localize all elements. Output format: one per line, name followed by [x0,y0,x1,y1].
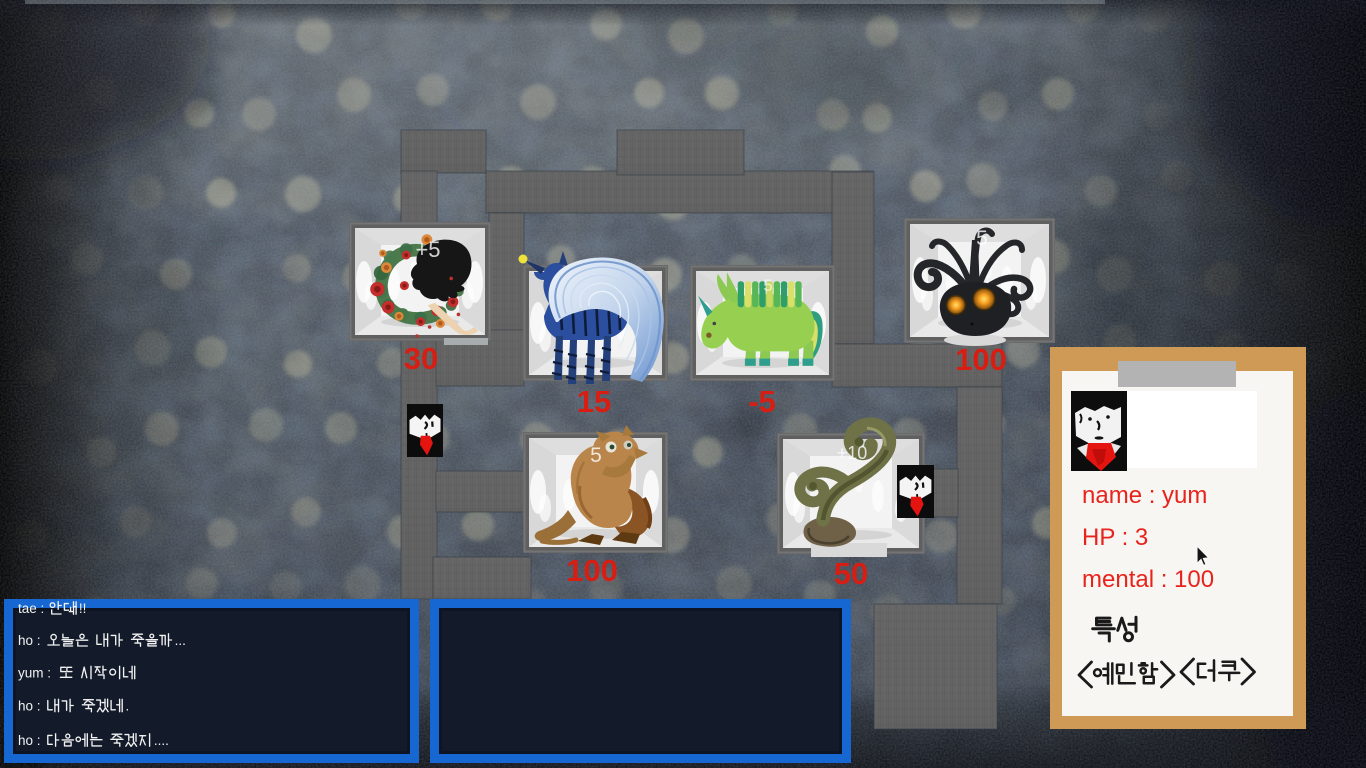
svg-text:+10: +10 [837,443,868,463]
svg-text:HP : 3: HP : 3 [1082,524,1148,551]
svg-text:!!: !! [79,601,87,616]
svg-text:ho :: ho : [18,699,41,714]
svg-text:...: ... [175,633,186,648]
svg-text:50: 50 [834,556,868,591]
svg-text:5: 5 [976,227,988,250]
svg-text:+5: +5 [415,237,440,262]
svg-text:name : yum: name : yum [1082,482,1207,509]
svg-text:.: . [126,699,130,714]
svg-text:-5: -5 [748,384,776,419]
svg-text:tae :: tae : [18,601,44,616]
svg-text:mental : 100: mental : 100 [1082,566,1214,593]
svg-text:....: .... [154,733,169,748]
svg-text:ho :: ho : [18,633,41,648]
svg-text:5: 5 [763,276,772,295]
svg-text:yum :: yum : [18,666,51,681]
svg-text:100: 100 [566,553,618,588]
svg-text:5: 5 [590,444,602,467]
svg-text:ho :: ho : [18,733,41,748]
svg-text:15: 15 [577,384,611,419]
svg-text:100: 100 [955,342,1007,377]
svg-text:30: 30 [404,341,438,376]
